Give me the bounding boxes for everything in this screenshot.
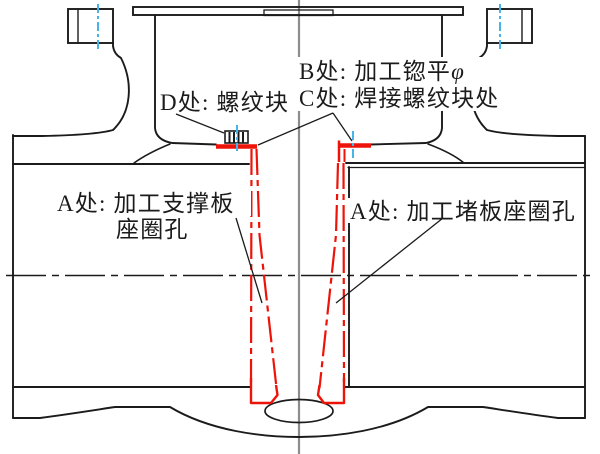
label-b-location: B处: 加工锪平φ: [299, 59, 464, 84]
inner-transition-right: [428, 144, 464, 163]
seat-left-bottom: [251, 378, 278, 403]
label-d-location: D处: 螺纹块: [160, 90, 289, 115]
leader-c-left: [258, 113, 333, 145]
leader-d: [176, 114, 224, 133]
bonnet-neck-left: [155, 16, 216, 145]
drawing-canvas: D处: 螺纹块 B处: 加工锪平φ C处: 焊接螺纹块处 A处: 加工支撑板 座…: [0, 0, 600, 454]
outer-profile-left: [13, 43, 129, 136]
label-a-left-line1: A处: 加工支撑板: [57, 191, 235, 216]
bolt-boss-right: [487, 9, 532, 43]
leader-c-right: [333, 113, 352, 141]
inner-transition-left: [134, 144, 170, 163]
leader-a-right: [336, 218, 443, 303]
seat-right-wall-outer: [344, 163, 345, 382]
label-c-location: C处: 焊接螺纹块处: [299, 86, 499, 111]
bolt-boss-left: [68, 9, 113, 43]
valve-section-drawing: D处: 螺纹块 B处: 加工锪平φ C处: 焊接螺纹块处 A处: 加工支撑板 座…: [0, 0, 600, 454]
seat-pocket-highlights: [216, 141, 371, 404]
phi-symbol: φ: [451, 59, 464, 84]
leader-a-left: [236, 218, 262, 303]
seat-left-wall-inner: [257, 149, 277, 388]
label-a-right: A处: 加工堵板座圈孔: [350, 199, 576, 224]
annotations: D处: 螺纹块 B处: 加工锪平φ C处: 焊接螺纹块处 A处: 加工支撑板 座…: [57, 59, 576, 242]
seat-right-bottom: [318, 378, 344, 403]
label-a-left-line2: 座圈孔: [116, 217, 189, 242]
